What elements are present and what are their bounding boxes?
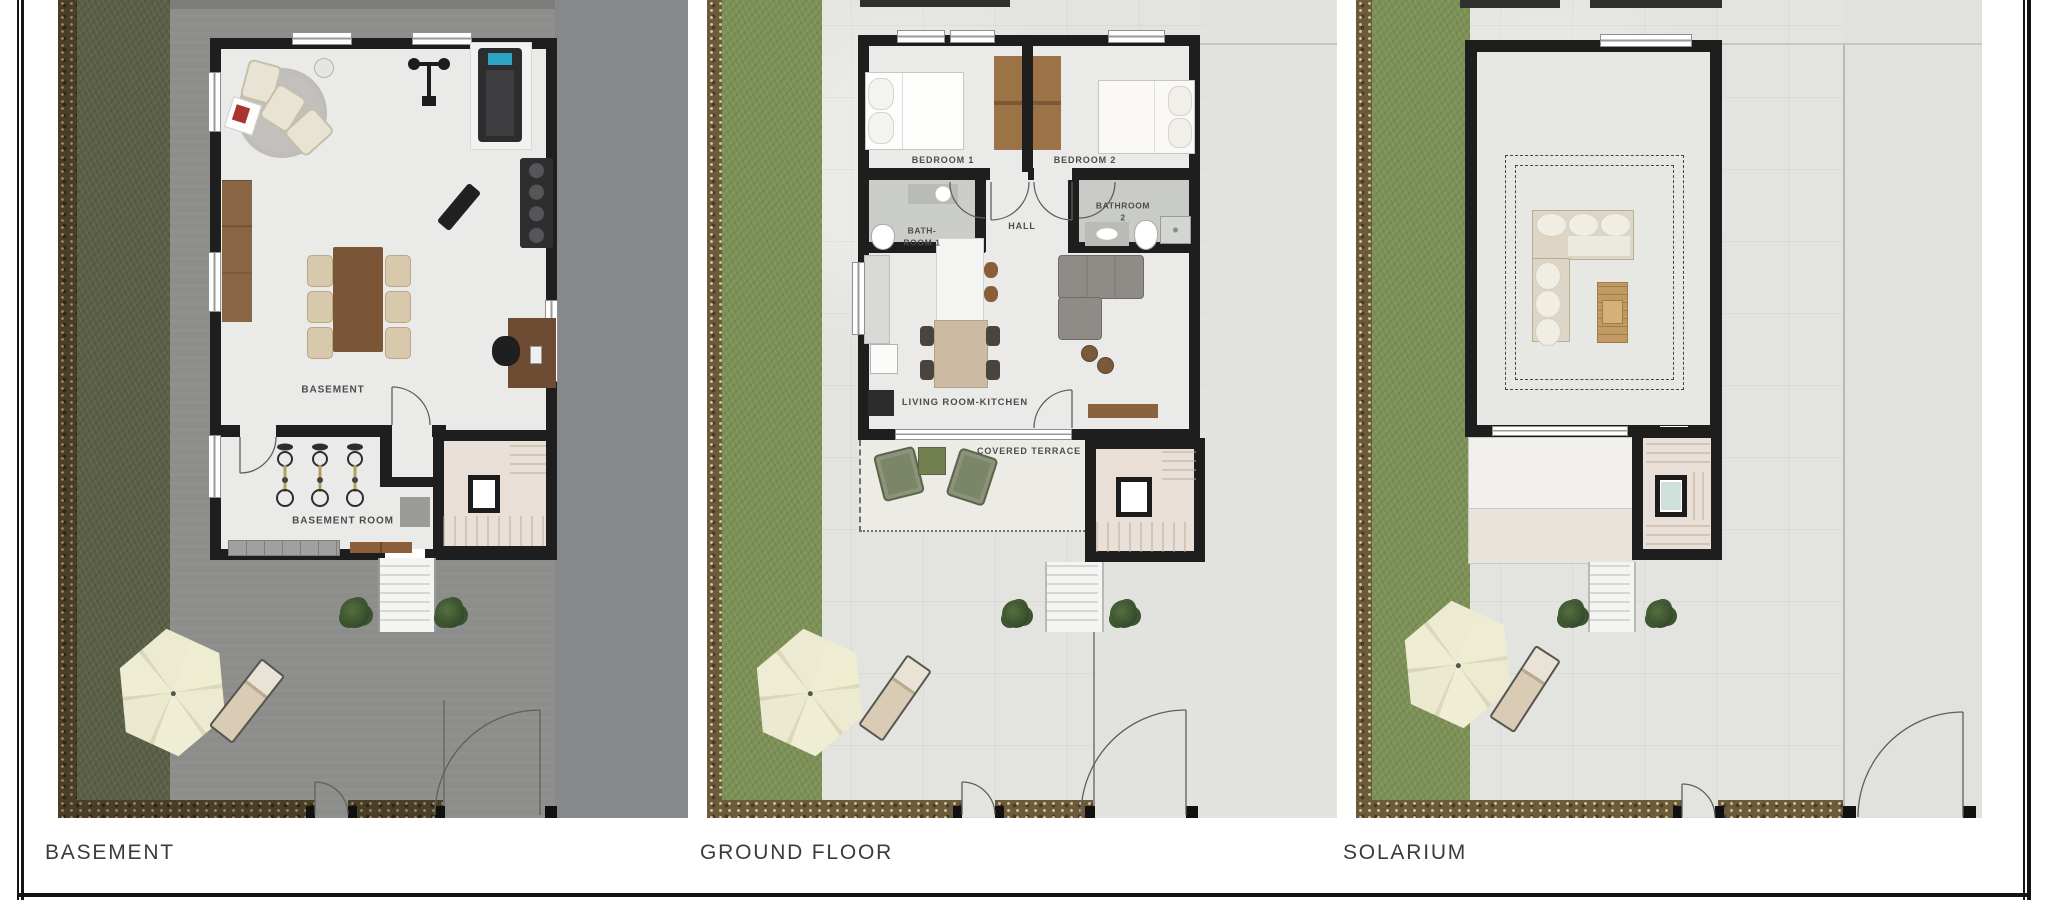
plant: [340, 598, 370, 628]
room-label-bathroom2-line2: 2: [1120, 212, 1125, 223]
dining-chair-1: [307, 255, 333, 287]
sofa-cushion: [1600, 213, 1631, 237]
sun-lounger: [858, 654, 932, 742]
ground-top-edge-line: [1200, 43, 1337, 45]
frame-right-thick: [2027, 0, 2031, 900]
bedroom-hall-wall-b: [1028, 168, 1034, 180]
bedroom-divider-wall: [1022, 46, 1033, 172]
ground-stair-shaft: [1116, 477, 1152, 517]
sofa-seat: [1568, 236, 1630, 256]
basement-dividing-wall-b: [276, 425, 392, 437]
room-label-covered-terrace: COVERED TERRACE: [977, 446, 1081, 458]
pedestrian-gate-arc: [315, 782, 348, 815]
dining-table: [934, 320, 988, 388]
kitchen-island: [936, 238, 984, 322]
dining-chair-5: [385, 291, 411, 323]
toilet: [1134, 220, 1158, 250]
pouf: [1097, 357, 1114, 374]
dumbbell-rack: [520, 158, 553, 248]
storage-shelf: [228, 540, 340, 556]
gate-post: [545, 806, 557, 818]
solarium-plot-wall-top-a: [1460, 0, 1560, 8]
terrace-table: [918, 447, 946, 475]
solarium-top-edge-line: [1722, 43, 1982, 45]
terrace-dashed-edge-left: [859, 440, 861, 532]
sofa-cushion: [1536, 213, 1567, 237]
basement-storage-jog-wall: [380, 477, 440, 487]
sofa-cushion: [1535, 262, 1561, 290]
basement-dirt-strip-bottom-left: [58, 800, 315, 818]
basement-dirt-strip-bottom-right: [348, 800, 443, 818]
dining-chair: [986, 326, 1000, 346]
kitchen-sink-unit: [870, 344, 898, 374]
ground-window-left: [852, 262, 865, 335]
solarium-dirt-border-left: [1356, 0, 1372, 800]
frame-bottom: [17, 893, 2031, 897]
gate-post: [1963, 806, 1976, 818]
basement-window-left-1: [208, 72, 221, 132]
solarium-dirt-strip-bottom-right: [1718, 800, 1843, 818]
dining-chair: [986, 360, 1000, 380]
storage-crates: [350, 542, 412, 553]
pedestrian-gate-arc: [962, 782, 995, 815]
gate-post: [306, 806, 315, 818]
ground-gate-bay: [1093, 562, 1205, 818]
room-label-bedroom2: BEDROOM 2: [1054, 155, 1117, 167]
pillow: [868, 78, 894, 110]
solarium-dirt-strip-bottom-left: [1356, 800, 1682, 818]
ground-window-top-3: [1108, 30, 1165, 43]
dining-chair: [920, 326, 934, 346]
basement-driveway-strip: [555, 0, 688, 818]
room-label-bathroom1-line1: BATH-: [908, 225, 937, 236]
bedroom-hall-wall-c: [1072, 168, 1198, 180]
room-label-hall: HALL: [1008, 221, 1036, 233]
sideboard: [222, 180, 252, 322]
gate-post: [348, 806, 357, 818]
ground-window-top-1: [897, 30, 945, 43]
frame-left-thin: [17, 0, 19, 900]
floor-mat: [400, 497, 430, 527]
desk-chair: [492, 336, 520, 366]
wardrobe: [1033, 56, 1061, 150]
basement-dirt-border-left: [58, 0, 77, 800]
vanity-sink: [1085, 222, 1129, 246]
treadmill-console: [488, 53, 512, 65]
ground-driveway-right: [1205, 0, 1337, 818]
vanity-sink: [908, 184, 958, 204]
gate-post: [1843, 806, 1856, 818]
corner-sofa: [1058, 255, 1144, 299]
basement-courtyard-boundary: [443, 700, 445, 818]
sofa-cushion: [1535, 318, 1561, 346]
room-label-basement: BASEMENT: [301, 384, 364, 397]
plant: [1002, 600, 1030, 628]
gate-post: [995, 806, 1004, 818]
gate-post: [1085, 806, 1095, 818]
gate-post: [953, 806, 962, 818]
floor-title-ground-floor: GROUND FLOOR: [700, 841, 893, 865]
sofa-cushion: [1535, 290, 1561, 318]
floor-title-solarium: SOLARIUM: [1343, 841, 1467, 865]
plant: [1558, 600, 1586, 628]
basement-window-left-3: [208, 435, 221, 498]
basement-window-top-1: [292, 32, 352, 45]
corner-sofa-chaise: [1058, 297, 1102, 340]
pedestrian-gate-arc: [1682, 784, 1715, 817]
sliding-glass-door: [895, 429, 1072, 440]
kitchen-appliance: [868, 390, 894, 416]
wardrobe: [994, 56, 1022, 150]
gate-post: [1673, 806, 1682, 818]
terrace-dotted-edge-bottom: [860, 530, 1085, 532]
pillow: [1168, 86, 1192, 116]
exterior-stairs: [1045, 562, 1104, 632]
lower-roof-band: [1468, 437, 1634, 510]
room-label-living: LIVING ROOM-KITCHEN: [902, 397, 1028, 409]
floor-title-basement: BASEMENT: [45, 841, 175, 865]
driveway-gate-arc: [435, 710, 540, 815]
gate-post: [1715, 806, 1724, 818]
plant: [435, 598, 465, 628]
bar-stool: [984, 262, 998, 278]
solarium-sliding-door: [1492, 426, 1628, 436]
panel-solarium: [1356, 0, 1982, 818]
room-label-basement-room: BASEMENT ROOM: [292, 515, 394, 528]
basement-stair-shaft: [468, 475, 500, 513]
dining-chair-4: [385, 255, 411, 287]
solarium-driveway-right: [1843, 0, 1982, 818]
ground-dirt-strip-bottom-left: [707, 800, 962, 818]
gate-post: [435, 806, 445, 818]
frame-left-thick: [21, 0, 24, 900]
plant: [1646, 600, 1674, 628]
dining-chair-2: [307, 291, 333, 323]
pillow: [1168, 118, 1192, 148]
room-label-bathroom2-line1: BATHROOM: [1096, 200, 1150, 211]
ground-dirt-border-left: [707, 0, 722, 800]
toilet: [871, 224, 895, 250]
desk-laptop: [530, 346, 542, 364]
plant: [1110, 600, 1138, 628]
gate-post: [1186, 806, 1198, 818]
floor-plan-sheet: BASEMENT BASEMENT ROOM: [0, 0, 2048, 900]
treadmill-belt: [486, 70, 514, 136]
dining-table: [333, 247, 383, 352]
exterior-stairs: [1588, 562, 1636, 632]
dining-chair-3: [307, 327, 333, 359]
dining-chair: [920, 360, 934, 380]
tv-bench: [1088, 404, 1158, 418]
basement-window-top-2: [412, 32, 472, 45]
bedroom-hall-wall-a: [858, 168, 990, 180]
small-round-table: [314, 58, 334, 78]
room-label-bedroom1: BEDROOM 1: [912, 155, 975, 167]
coffee-table-tray: [1602, 300, 1623, 324]
kitchen-counter: [864, 255, 890, 344]
basement-window-left-2: [208, 252, 221, 312]
frame-right-thin: [2023, 0, 2025, 900]
pillow: [868, 112, 894, 144]
solarium-skylight-glass: [1661, 482, 1681, 510]
ground-window-top-2: [950, 30, 995, 43]
room-label-bathroom1-line2: ROOM 1: [903, 237, 940, 248]
solarium-plot-wall-top-b: [1590, 0, 1722, 8]
panel-ground-floor: BEDROOM 1 BEDROOM 2 BATH- ROOM 1 BATHROO…: [707, 0, 1337, 818]
panel-basement: BASEMENT BASEMENT ROOM: [58, 0, 688, 818]
ground-plot-wall-top: [860, 0, 1010, 7]
bar-stool: [984, 286, 998, 302]
pouf: [1081, 345, 1098, 362]
sofa-cushion: [1568, 213, 1599, 237]
dining-chair-6: [385, 327, 411, 359]
exterior-stairs: [378, 558, 436, 632]
shower: [1160, 216, 1191, 244]
solarium-window-top: [1600, 34, 1692, 47]
lower-roof-band-2: [1468, 508, 1634, 564]
solarium-courtyard-boundary: [1843, 45, 1845, 818]
ground-dirt-strip-bottom-right: [995, 800, 1093, 818]
